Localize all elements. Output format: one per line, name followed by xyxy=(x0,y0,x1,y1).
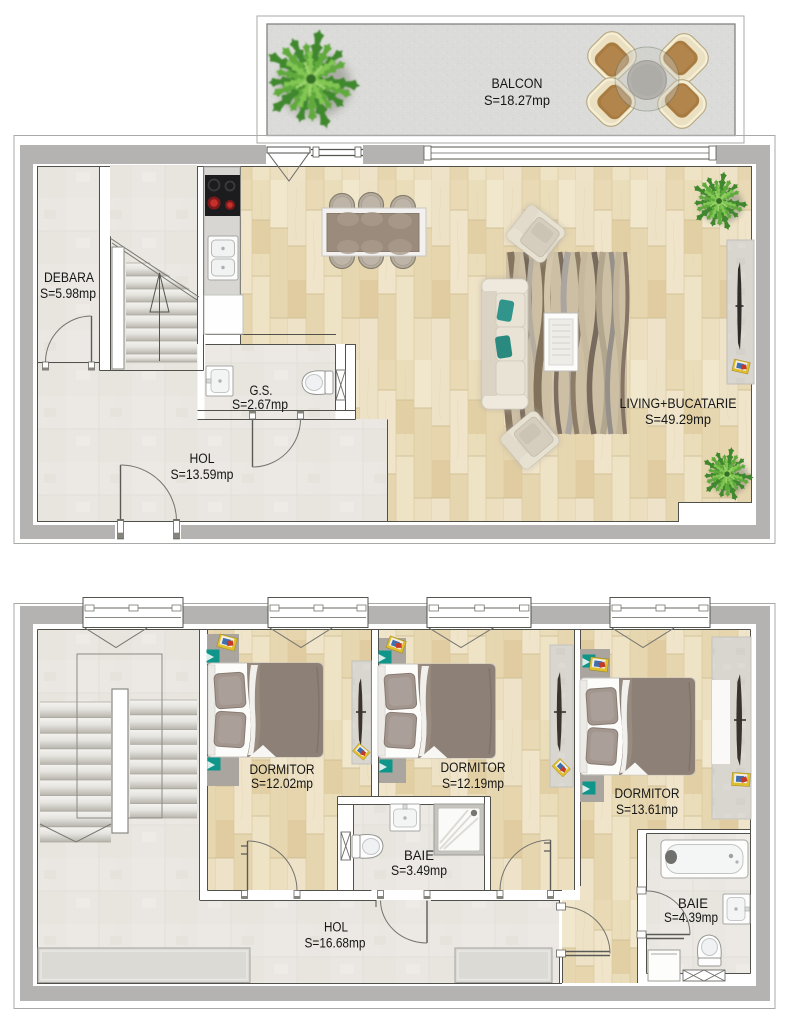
svg-text:HOL: HOL xyxy=(324,920,348,935)
svg-text:S=12.02mp: S=12.02mp xyxy=(251,776,313,791)
svg-text:BAIE: BAIE xyxy=(404,848,434,863)
svg-text:S=4.39mp: S=4.39mp xyxy=(664,910,718,925)
svg-text:S=18.27mp: S=18.27mp xyxy=(484,93,550,108)
svg-text:DORMITOR: DORMITOR xyxy=(441,760,506,775)
svg-text:DEBARA: DEBARA xyxy=(44,270,94,285)
svg-text:G.S.: G.S. xyxy=(250,383,273,398)
svg-text:S=13.61mp: S=13.61mp xyxy=(616,802,678,817)
svg-text:S=13.59mp: S=13.59mp xyxy=(171,467,234,482)
svg-text:HOL: HOL xyxy=(190,451,215,466)
svg-text:S=16.68mp: S=16.68mp xyxy=(305,936,366,951)
svg-text:S=5.98mp: S=5.98mp xyxy=(40,286,96,301)
svg-text:S=49.29mp: S=49.29mp xyxy=(645,412,711,427)
svg-text:S=2.67mp: S=2.67mp xyxy=(232,397,288,412)
svg-text:LIVING+BUCATARIE: LIVING+BUCATARIE xyxy=(620,396,737,411)
svg-text:DORMITOR: DORMITOR xyxy=(615,786,680,801)
svg-text:S=3.49mp: S=3.49mp xyxy=(391,863,447,878)
svg-text:BALCON: BALCON xyxy=(492,76,543,91)
svg-text:DORMITOR: DORMITOR xyxy=(250,762,315,777)
svg-text:BAIE: BAIE xyxy=(678,896,708,911)
svg-text:S=12.19mp: S=12.19mp xyxy=(442,776,504,791)
